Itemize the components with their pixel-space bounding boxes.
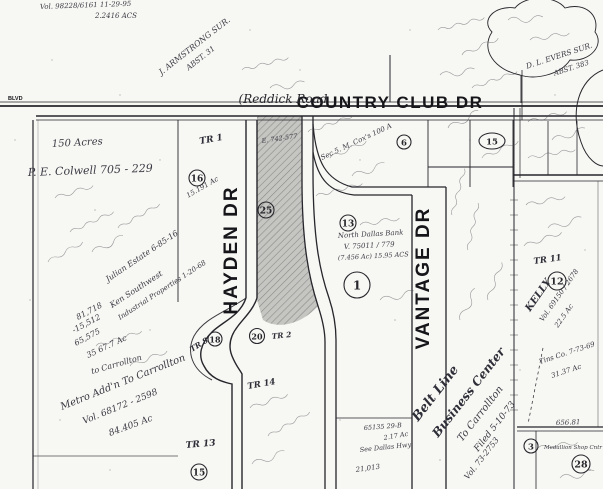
note-bank-3: (7.456 Ac) 15.95 ACS xyxy=(338,250,410,262)
note-dim-656: 656.81 xyxy=(556,418,581,427)
tract-label-tr14: TR 14 xyxy=(247,377,277,392)
note-julian: Julian Estate 6-85-16 xyxy=(102,229,179,285)
circled-lot-15-oval: 15 xyxy=(479,133,505,149)
note-metro-3: 84.405 Ac xyxy=(108,414,155,439)
plat-map: COUNTRY CLUB DR (Reddick Road BLVD HAYDE… xyxy=(0,0,603,489)
circled-lot-20: 20 xyxy=(250,329,265,344)
circled-lot-28: 28 xyxy=(572,455,590,473)
note-colwell-acres: 150 Acres xyxy=(52,136,103,150)
svg-text:20: 20 xyxy=(251,332,263,342)
svg-text:15: 15 xyxy=(193,469,206,479)
note-sq-21013: 21,013 xyxy=(354,463,381,475)
note-bank-1: North Dallas Bank xyxy=(337,229,404,240)
note-tins-1: Tins Co. 7-73-69 xyxy=(538,340,596,366)
note-cox: Sec 5. M. Cox's 100 A xyxy=(319,122,393,162)
note-vol-2: 2.2416 ACS xyxy=(94,12,137,20)
note-vol-1: Vol. 98228/6161 11-29-95 xyxy=(40,0,132,11)
note-dallas-3: See Dallas Hwy xyxy=(359,441,412,454)
tract-label-tr13: TR 13 xyxy=(185,438,216,451)
survey-label-evers-2: ABST. 383 xyxy=(552,58,591,77)
note-colwell-owner: P. E. Colwell 705 - 229 xyxy=(27,162,153,179)
road-label-vantage: VANTAGE DR xyxy=(413,207,434,350)
road-label-reddick: (Reddick Road xyxy=(239,92,328,106)
note-bank-2: V. 75011 / 779 xyxy=(344,240,396,251)
svg-text:15: 15 xyxy=(486,138,498,148)
circled-lot-6: 6 xyxy=(397,135,411,149)
svg-text:3: 3 xyxy=(528,443,534,453)
railroad-line xyxy=(510,108,520,489)
road-label-blvd: BLVD xyxy=(8,96,23,102)
circled-lot-18: 18 xyxy=(208,332,222,346)
tract-label-tr1: TR 1 xyxy=(199,133,224,147)
tract-label-tr11: TR 11 xyxy=(533,253,562,267)
circled-lot-15-b: 15 xyxy=(191,464,207,480)
note-medallion: Medallion Shop Cntr xyxy=(543,445,602,451)
svg-text:25: 25 xyxy=(260,207,273,217)
svg-text:13: 13 xyxy=(342,220,355,230)
map-canvas: COUNTRY CLUB DR (Reddick Road BLVD HAYDE… xyxy=(0,0,603,489)
parcel-shaded-tract xyxy=(257,116,318,325)
note-dallas-1: 65135 29-B xyxy=(364,421,403,432)
right-edge-hook-curve xyxy=(576,70,603,166)
parcel-grid-north-right xyxy=(428,120,513,187)
note-tins-2: 31.37 Ac xyxy=(550,363,582,380)
circled-lot-13: 13 xyxy=(340,215,356,231)
svg-text:1: 1 xyxy=(353,279,361,293)
svg-text:6: 6 xyxy=(401,139,407,149)
svg-text:28: 28 xyxy=(574,460,588,471)
road-label-hayden: HAYDEN DR xyxy=(221,185,242,314)
svg-text:18: 18 xyxy=(209,335,221,345)
circled-lot-1: 1 xyxy=(344,272,370,298)
tract-label-tr2: TR 2 xyxy=(271,330,291,341)
